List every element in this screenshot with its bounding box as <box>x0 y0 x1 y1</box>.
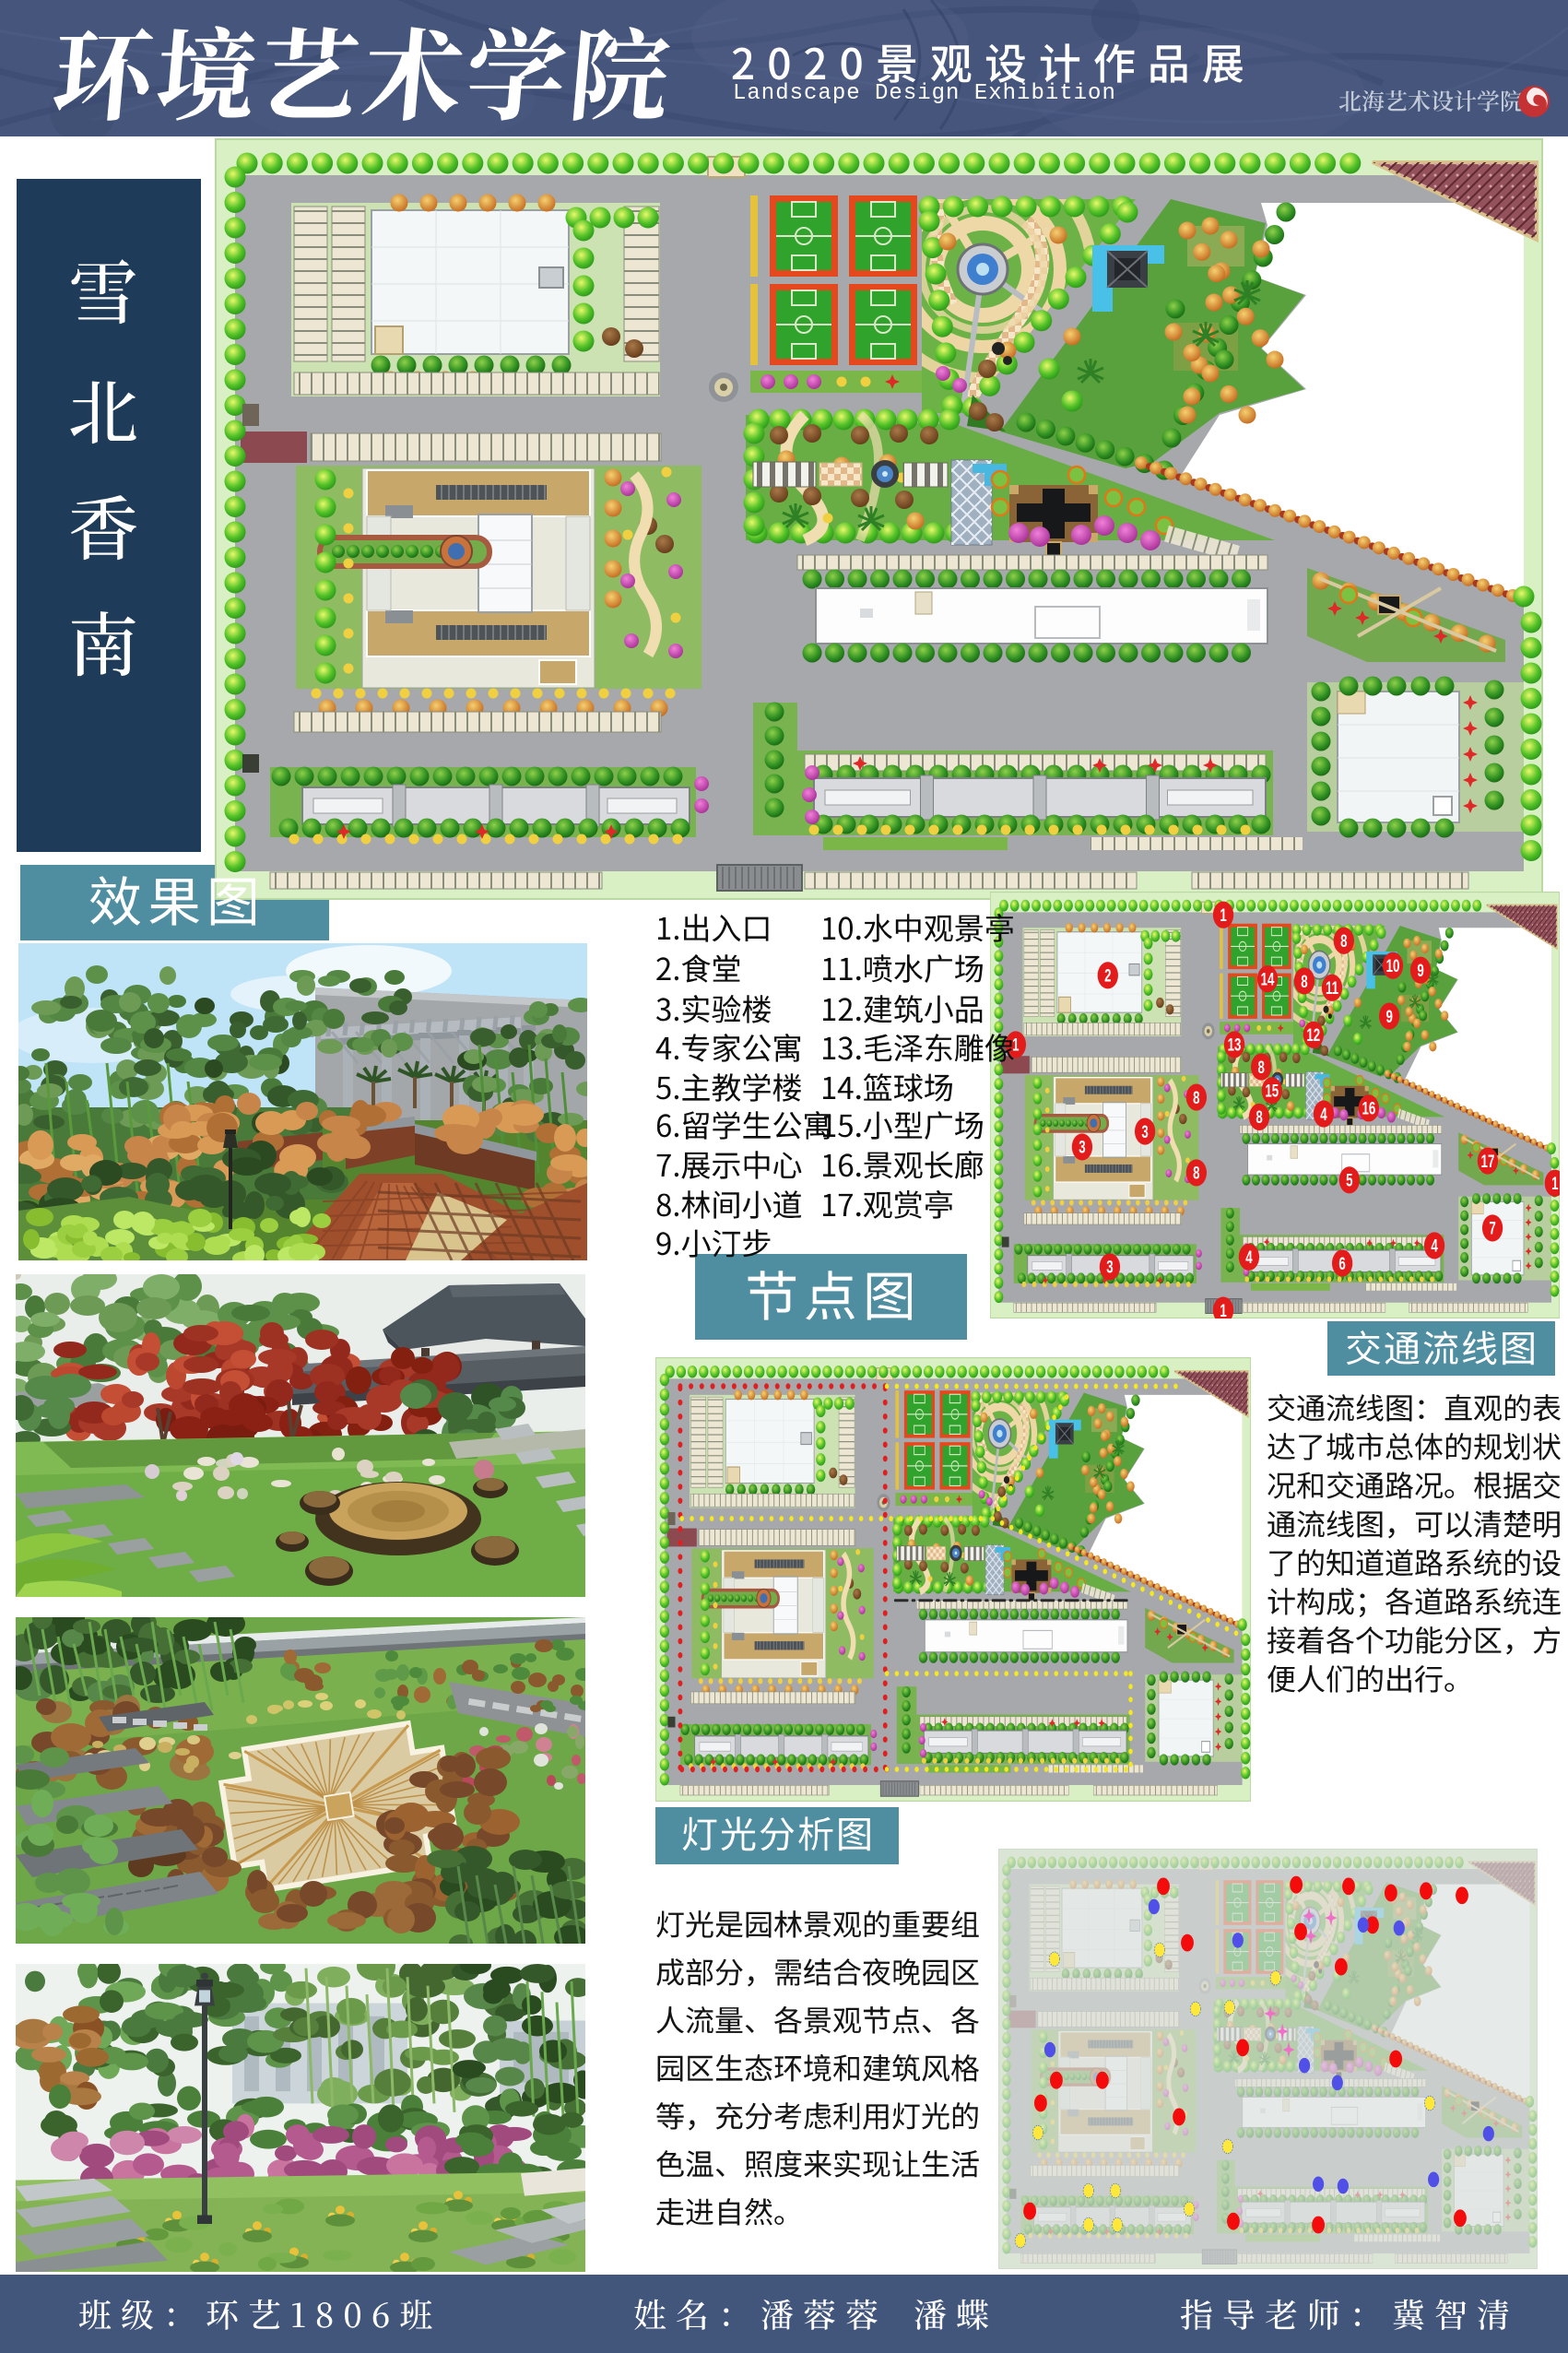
svg-text:8: 8 <box>1340 932 1347 952</box>
svg-text:3: 3 <box>1141 1123 1148 1142</box>
svg-text:9: 9 <box>1385 1008 1392 1027</box>
svg-text:11: 11 <box>1326 979 1338 999</box>
svg-text:5: 5 <box>1346 1171 1352 1190</box>
svg-text:1: 1 <box>1220 1302 1226 1318</box>
svg-text:8: 8 <box>1193 1089 1199 1108</box>
svg-text:4: 4 <box>1320 1106 1327 1125</box>
svg-text:7: 7 <box>1489 1219 1495 1238</box>
svg-text:6: 6 <box>1338 1255 1345 1274</box>
svg-text:10: 10 <box>1386 957 1400 976</box>
svg-text:13: 13 <box>1228 1035 1242 1055</box>
svg-text:16: 16 <box>1362 1099 1375 1118</box>
svg-text:15: 15 <box>1265 1082 1279 1101</box>
svg-text:1: 1 <box>1220 906 1226 926</box>
svg-text:8: 8 <box>1301 973 1307 992</box>
svg-text:17: 17 <box>1481 1153 1495 1172</box>
svg-text:4: 4 <box>1245 1248 1253 1268</box>
svg-text:14: 14 <box>1261 970 1275 989</box>
svg-text:1: 1 <box>1012 1035 1019 1055</box>
svg-text:9: 9 <box>1417 962 1423 981</box>
svg-text:8: 8 <box>1258 1058 1265 1078</box>
svg-text:8: 8 <box>1193 1164 1199 1183</box>
svg-text:3: 3 <box>1079 1138 1085 1157</box>
svg-text:8: 8 <box>1256 1108 1262 1128</box>
svg-text:2: 2 <box>1104 966 1111 986</box>
svg-text:12: 12 <box>1306 1026 1320 1046</box>
svg-text:4: 4 <box>1431 1236 1438 1256</box>
svg-text:1: 1 <box>1551 1175 1558 1194</box>
svg-text:3: 3 <box>1106 1258 1113 1277</box>
